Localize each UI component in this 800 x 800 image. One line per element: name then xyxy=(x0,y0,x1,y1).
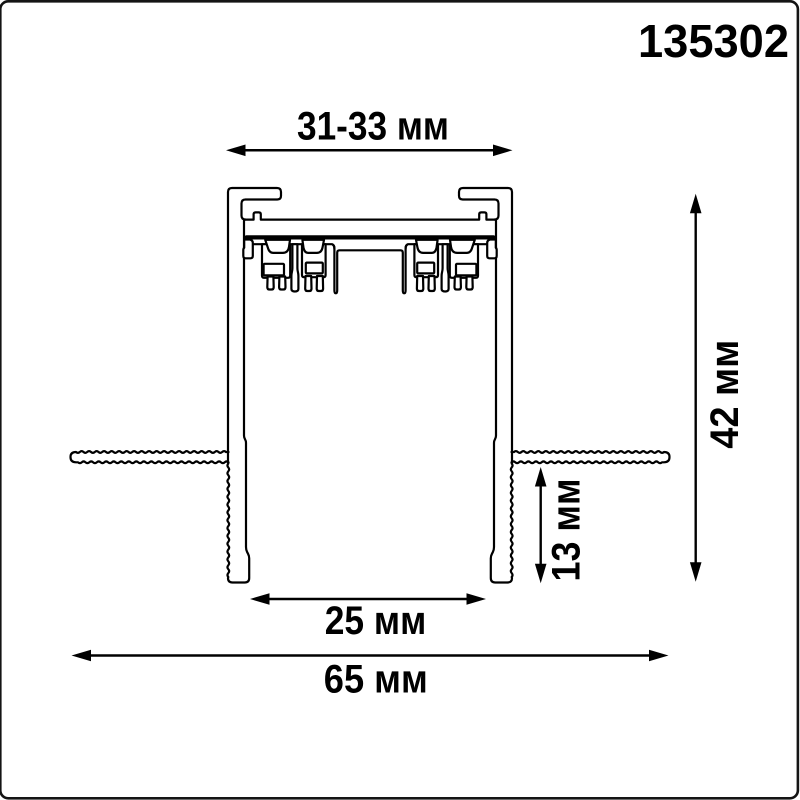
svg-text:13 мм: 13 мм xyxy=(545,479,589,582)
svg-text:65 мм: 65 мм xyxy=(324,658,428,702)
svg-text:25 мм: 25 мм xyxy=(325,599,427,643)
svg-text:42 мм: 42 мм xyxy=(703,340,747,449)
svg-text:135302: 135302 xyxy=(638,15,789,67)
svg-text:31-33 мм: 31-33 мм xyxy=(297,105,449,149)
